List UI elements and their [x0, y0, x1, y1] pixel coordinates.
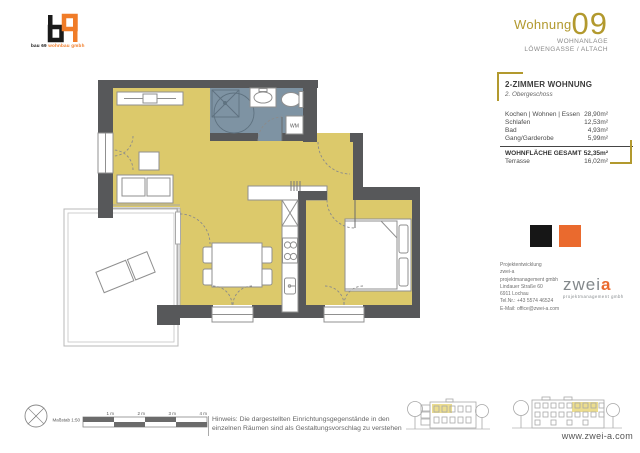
terrace-row: Terrasse16,02m² — [505, 158, 608, 166]
kitchen-counter — [282, 200, 298, 312]
zwei-a-logo-subtext: projektmanagement gmbh — [563, 294, 639, 299]
room-label: Kochen | Wohnen | Essen — [505, 111, 580, 119]
project-name-line1: WOHNANLAGE — [388, 38, 608, 46]
floorplan-sheet: { "logo": {"tagline_left": "bau 69 ", "t… — [0, 0, 640, 453]
sideboard — [117, 92, 183, 105]
room-area: 12,53m² — [584, 119, 608, 127]
website-url: www.zwei-a.com — [562, 431, 633, 441]
svg-text:4 m: 4 m — [199, 411, 207, 416]
room-area: 5,99m² — [588, 135, 608, 143]
zwei-a-logo-text: zweia — [563, 276, 639, 293]
logo-accent: a — [601, 275, 611, 294]
logo-text: zwei — [563, 275, 601, 294]
material-swatch-black — [530, 225, 552, 247]
contact-line: Lindauer Straße 60 — [500, 284, 559, 291]
room-label: Bad — [505, 127, 517, 135]
room-area-table: Kochen | Wohnen | Essen28,90m² Schlafen1… — [505, 111, 608, 143]
svg-text:3 m: 3 m — [168, 411, 176, 416]
side-table — [139, 152, 159, 170]
compass-icon — [25, 405, 47, 427]
contact-email: E-Mail: office@zwei-a.com — [500, 306, 559, 313]
room-area: 4,93m² — [588, 127, 608, 135]
scale-bar: Maßstab 1:50 1 m 2 m 3 m 4 m — [52, 411, 207, 427]
contact-phone: Tel.Nr.: +43 5574 46524 — [500, 298, 559, 305]
panel-title: 2-ZIMMER WOHNUNG — [505, 80, 637, 89]
table-row: Gang/Garderobe5,99m² — [505, 135, 608, 143]
total-area: 52,35m² — [584, 150, 608, 158]
bath-sink — [250, 88, 276, 107]
toilet — [282, 92, 304, 108]
room-label: Schlafen — [505, 119, 530, 127]
svg-text:2 m: 2 m — [137, 411, 145, 416]
footer-separator — [208, 416, 209, 436]
floor-plan: WM — [64, 80, 420, 346]
company-logo-icon — [48, 15, 78, 42]
totals-rows: WOHNFLÄCHE GESAMT52,35m² Terrasse16,02m² — [505, 150, 608, 166]
gold-bracket-bottom-icon — [610, 140, 632, 164]
apartment-label: Wohnung — [514, 17, 572, 36]
building-sketch-1 — [406, 399, 490, 429]
table-row: Kochen | Wohnen | Essen28,90m² — [505, 111, 608, 119]
header: Wohnung 09 WOHNANLAGE LÖWENGASSE / ALTAC… — [388, 12, 608, 53]
room-area: 28,90m² — [584, 111, 608, 119]
apartment-info-panel: 2-ZIMMER WOHNUNG 2. Obergeschoss Kochen … — [497, 72, 637, 166]
apartment-title: Wohnung 09 — [388, 12, 608, 36]
total-row: WOHNFLÄCHE GESAMT52,35m² — [505, 150, 608, 158]
terrace-label: Terrasse — [505, 158, 530, 166]
table-row: Schlafen12,53m² — [505, 119, 608, 127]
contact-heading: Projektentwicklung — [500, 262, 559, 269]
svg-text:1 m: 1 m — [106, 411, 114, 416]
bed — [345, 219, 411, 291]
svg-text:WM: WM — [290, 124, 299, 130]
table-row: Bad4,93m² — [505, 127, 608, 135]
svg-text:Maßstab 1:50: Maßstab 1:50 — [52, 418, 80, 423]
gold-bracket-top-icon — [497, 72, 523, 101]
sofa — [117, 175, 173, 203]
apartment-number: 09 — [572, 12, 608, 36]
zwei-a-logo: zweia projektmanagement gmbh — [563, 276, 639, 299]
washing-machine: WM — [286, 116, 303, 134]
company-logo-tagline: bau 69 wohnbau gmbh — [31, 43, 85, 48]
note-line2: einzelnen Räumen sind als Gestaltungsvor… — [212, 425, 402, 434]
disclaimer-note: Hinweis: Die dargestellten Einrichtungsg… — [212, 416, 402, 434]
project-name-line2: LÖWENGASSE / ALTACH — [388, 46, 608, 54]
contact-line: projektmanagement gmbh — [500, 277, 559, 284]
building-sketch-2 — [512, 397, 622, 428]
material-swatch-orange — [559, 225, 581, 247]
panel-subtitle: 2. Obergeschoss — [505, 91, 637, 98]
contact-line: zwei-a — [500, 269, 559, 276]
dining-table — [212, 243, 262, 287]
contact-block: Projektentwicklung zwei-a projektmanagem… — [500, 262, 559, 313]
terrace-area: 16,02m² — [584, 158, 608, 166]
note-line1: Hinweis: Die dargestellten Einrichtungsg… — [212, 416, 402, 425]
contact-line: 6911 Lochau — [500, 291, 559, 298]
room-label: Gang/Garderobe — [505, 135, 554, 143]
total-label: WOHNFLÄCHE GESAMT — [505, 150, 582, 158]
